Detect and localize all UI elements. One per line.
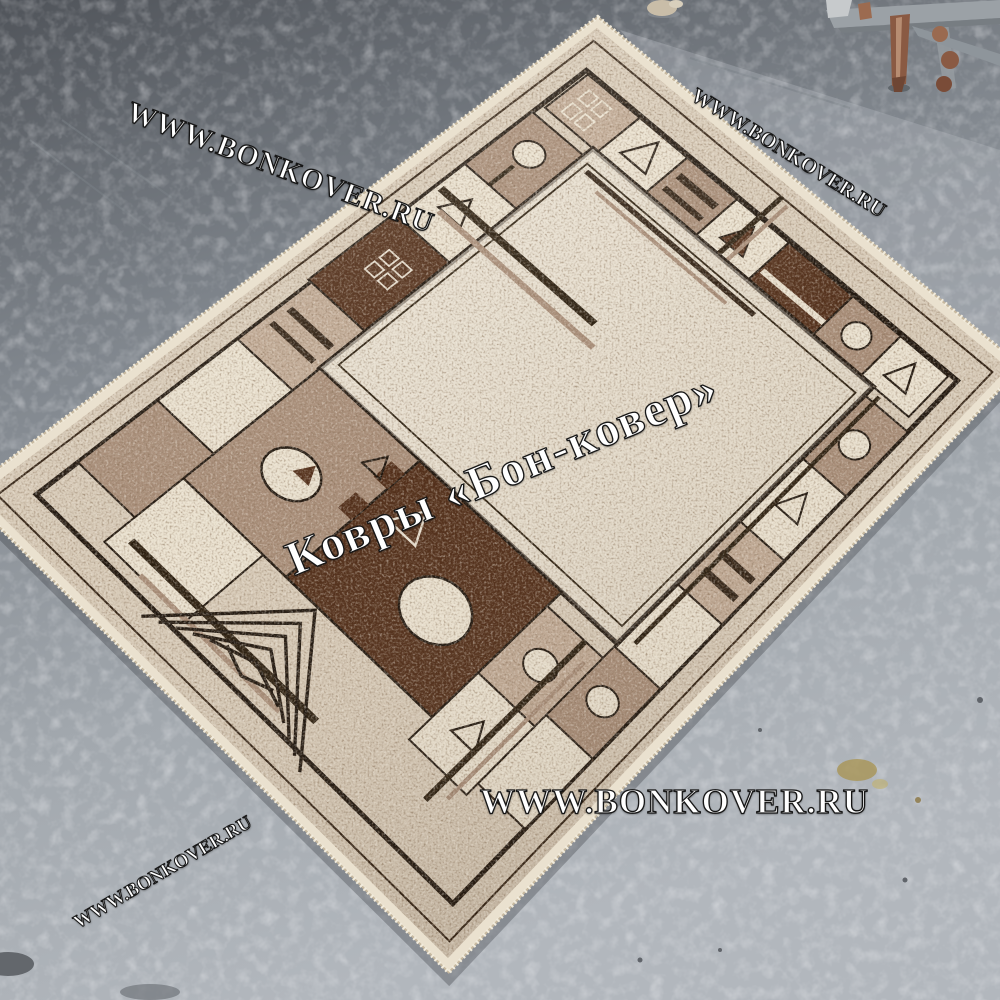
rug-product-photo: WWW.BONKOVER.RU WWW.BONKOVER.RU Ковры «Б… (0, 0, 1000, 1000)
watermark-bottom: WWW.BONKOVER.RU (480, 782, 869, 822)
